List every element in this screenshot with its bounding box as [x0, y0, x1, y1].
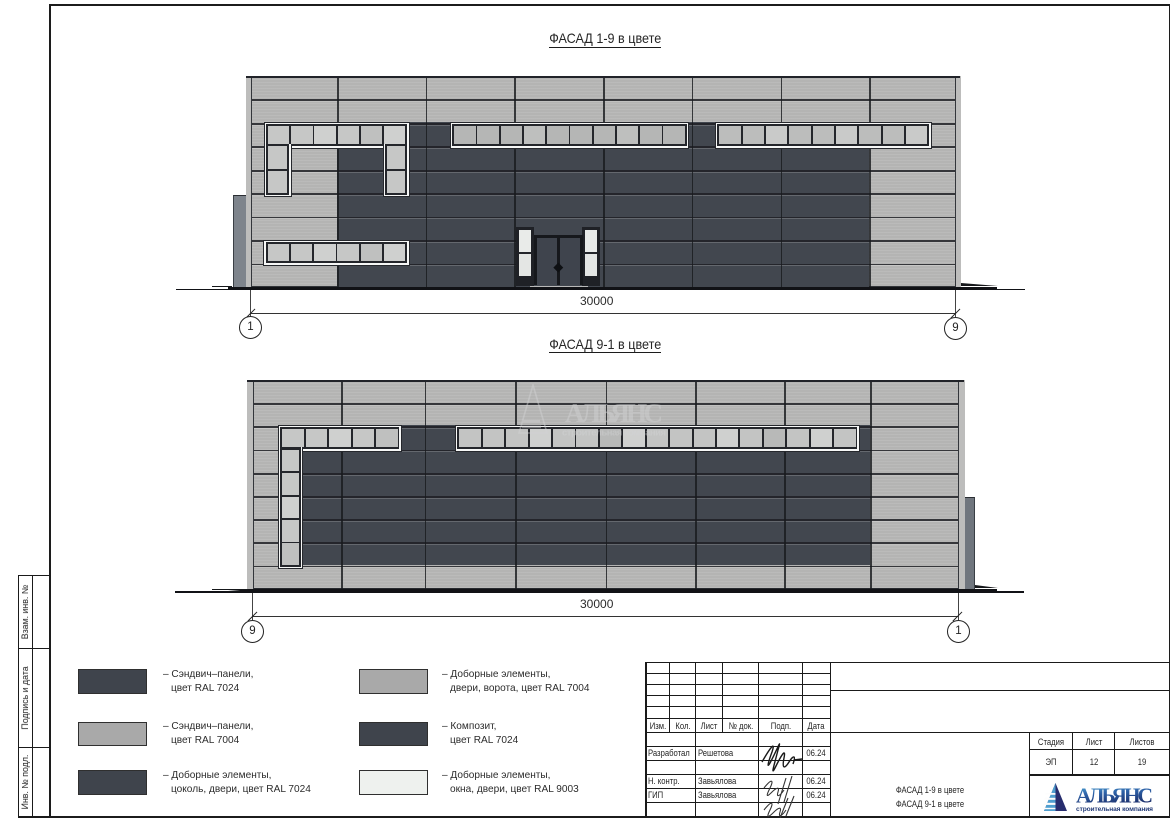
svg-text:строительная компания: строительная компания — [1076, 806, 1153, 813]
svg-text:АЛЬЯНС: АЛЬЯНС — [565, 398, 663, 428]
svg-text:строительная компания: строительная компания — [562, 428, 666, 439]
svg-text:АЛЬЯНС: АЛЬЯНС — [1076, 784, 1153, 808]
